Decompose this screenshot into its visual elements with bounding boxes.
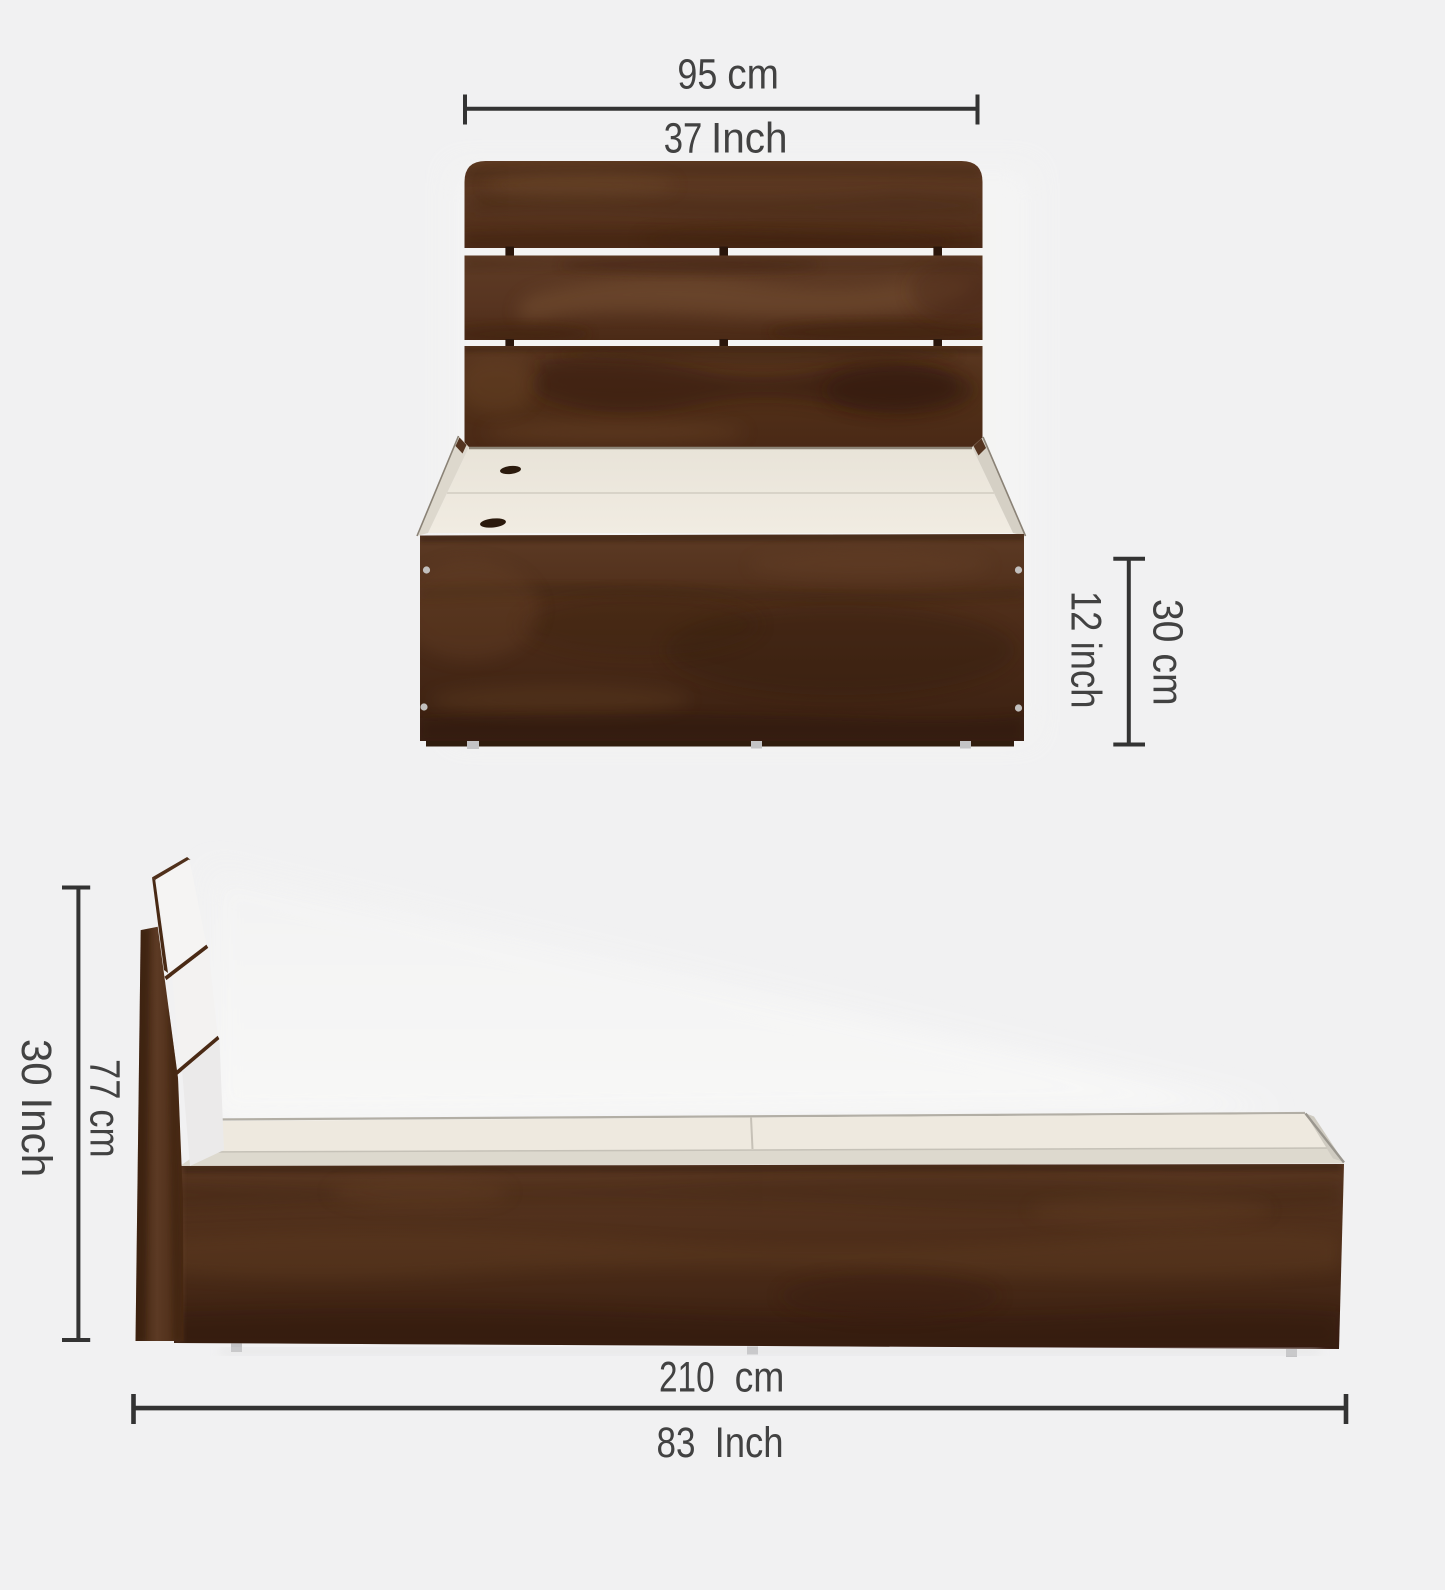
svg-text:Inch: Inch xyxy=(711,115,788,163)
svg-text:cm: cm xyxy=(735,1354,785,1402)
svg-text:83: 83 xyxy=(657,1419,696,1467)
svg-text:30 Inch: 30 Inch xyxy=(12,1039,60,1177)
svg-text:30 cm: 30 cm xyxy=(1144,599,1192,706)
svg-text:95: 95 xyxy=(677,51,717,99)
svg-text:cm: cm xyxy=(727,51,779,99)
svg-text:77 cm: 77 cm xyxy=(81,1059,129,1158)
svg-text:37: 37 xyxy=(664,115,703,163)
svg-text:12 inch: 12 inch xyxy=(1062,591,1110,709)
svg-text:Inch: Inch xyxy=(715,1419,784,1467)
svg-text:210: 210 xyxy=(659,1354,715,1402)
